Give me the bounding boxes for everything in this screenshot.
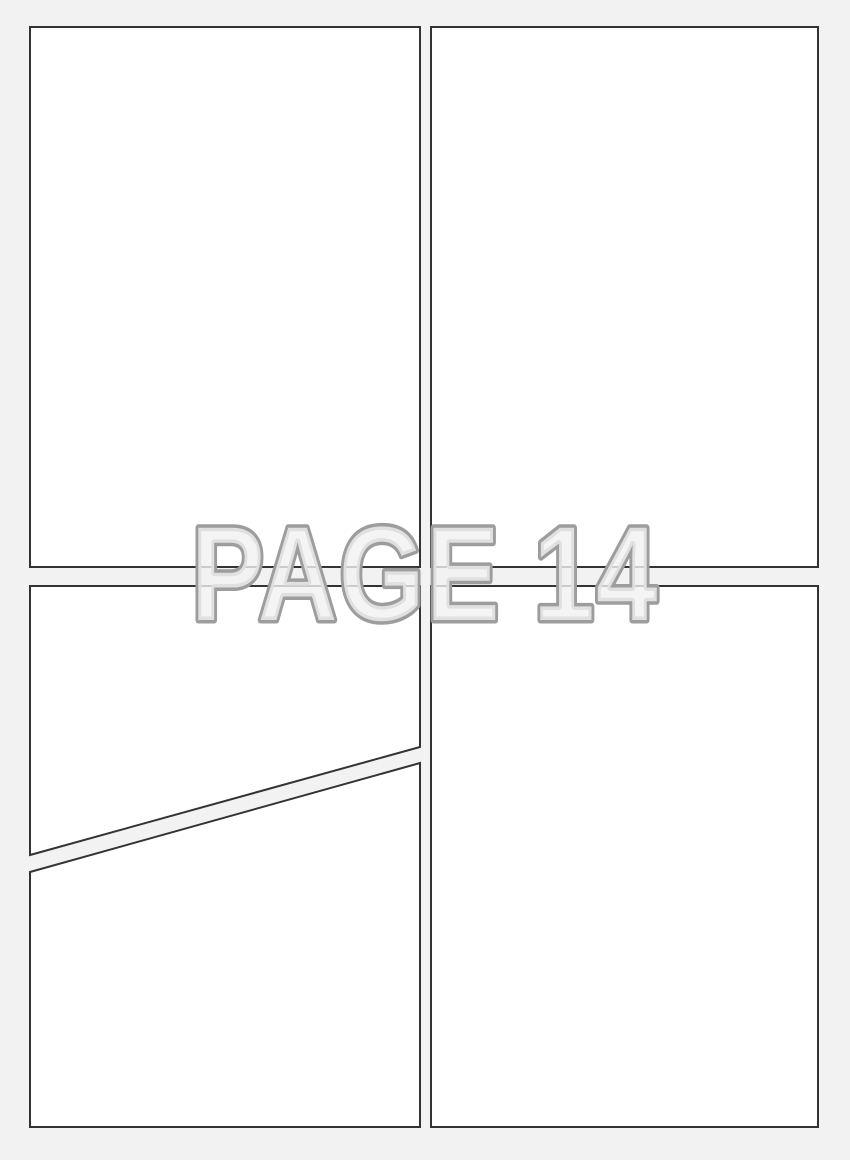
panel-top-right bbox=[430, 26, 819, 568]
panel-bottom-right bbox=[430, 585, 819, 1128]
panel-bottom-left-group bbox=[29, 585, 421, 1128]
comic-page-template: PAGE 14 bbox=[0, 0, 850, 1160]
panel-top-left bbox=[29, 26, 421, 568]
